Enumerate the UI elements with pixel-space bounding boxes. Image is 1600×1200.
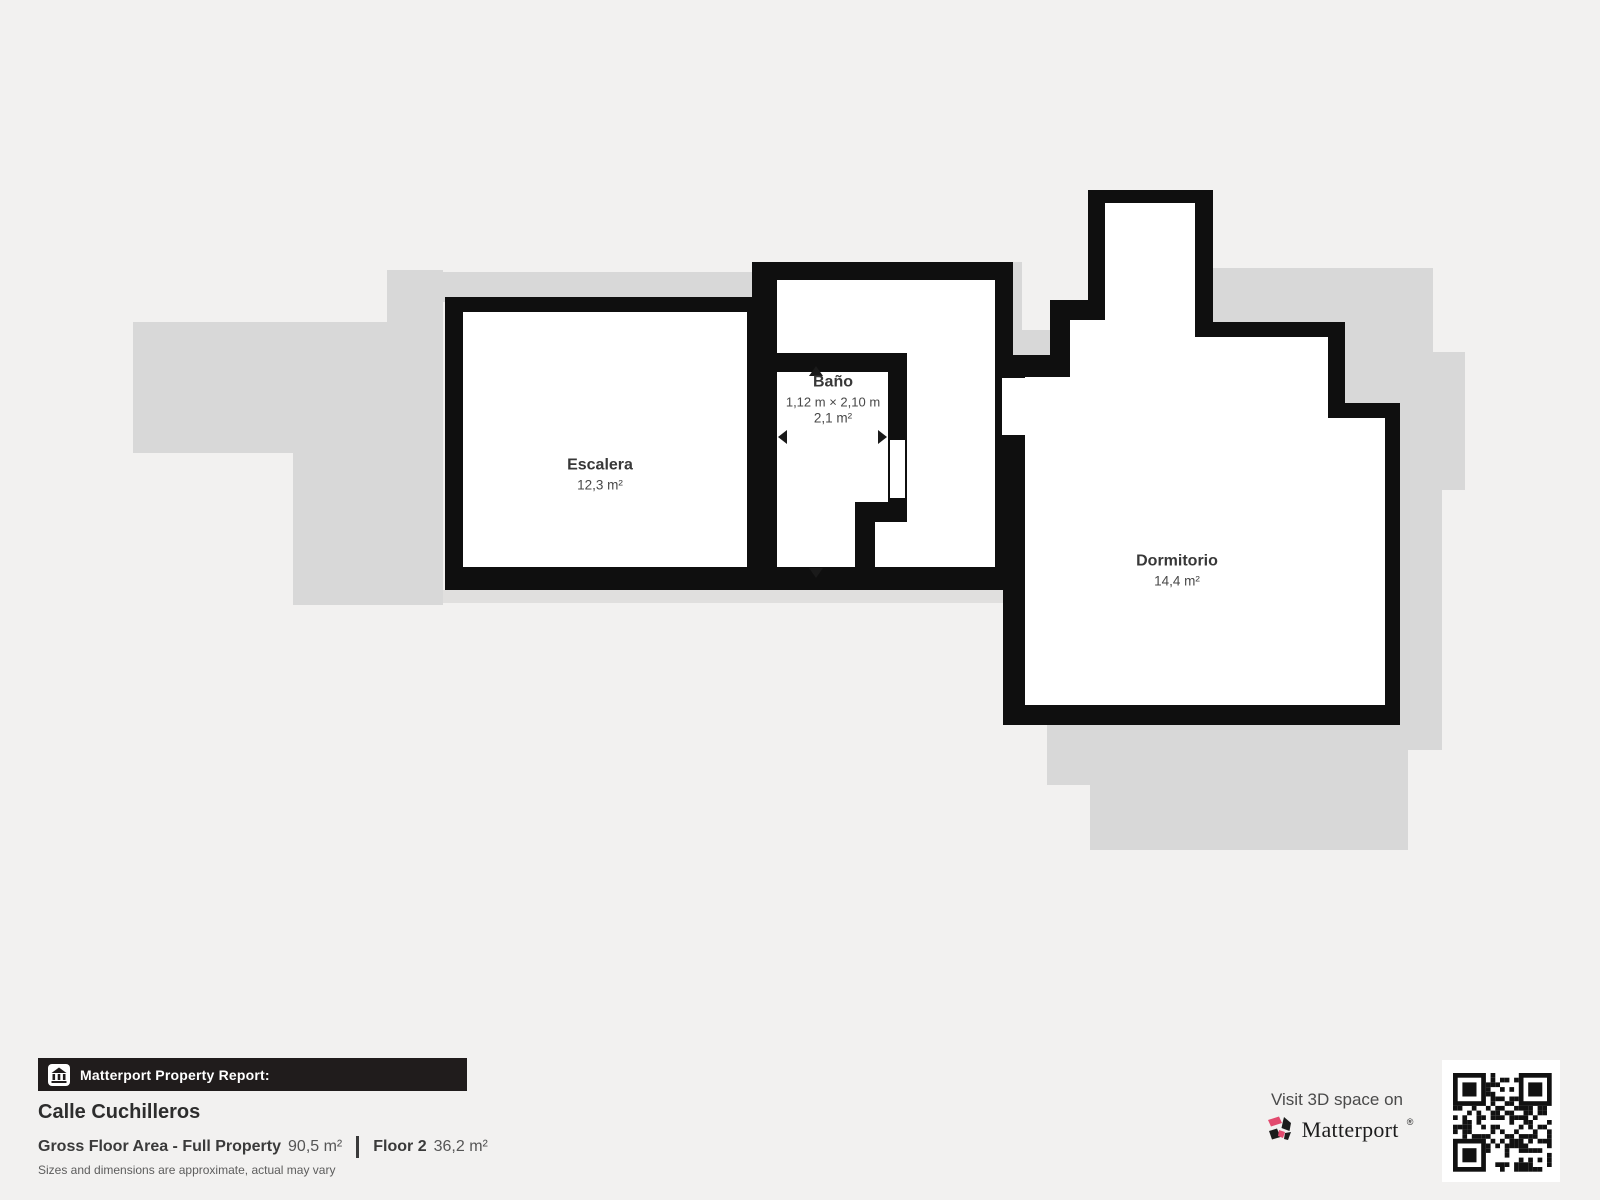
- floorplan-canvas: [0, 0, 1600, 1200]
- floor-area-value: 36,2 m²: [434, 1138, 488, 1156]
- separator-bar: [356, 1136, 359, 1158]
- matterport-house-icon: [48, 1064, 70, 1086]
- matterport-wordmark: Matterport: [1302, 1117, 1399, 1143]
- room-name: Baño: [786, 372, 880, 392]
- gross-area-label: Gross Floor Area - Full Property: [38, 1138, 281, 1156]
- report-banner-label: Matterport Property Report:: [80, 1067, 270, 1083]
- matterport-brand: Matterport ®: [1254, 1115, 1424, 1145]
- door-opening-bano: [890, 440, 905, 498]
- property-name: Calle Cuchilleros: [38, 1101, 200, 1124]
- room-interior-escalera: [463, 312, 747, 567]
- room-area: 14,4 m²: [1136, 574, 1218, 591]
- room-label-dormitorio: Dormitorio 14,4 m²: [1136, 552, 1218, 591]
- door-opening-dormitorio: [1002, 378, 1025, 435]
- room-dimensions: 1,12 m × 2,10 m: [786, 394, 880, 410]
- gross-area-value: 90,5 m²: [288, 1138, 342, 1156]
- qr-code: [1442, 1060, 1560, 1182]
- disclaimer-text: Sizes and dimensions are approximate, ac…: [38, 1163, 335, 1177]
- room-area: 2,1 m²: [786, 411, 880, 428]
- room-area: 12,3 m²: [567, 478, 633, 495]
- room-name: Escalera: [567, 456, 633, 476]
- room-label-bano: Baño 1,12 m × 2,10 m 2,1 m²: [786, 372, 880, 427]
- area-info-line: Gross Floor Area - Full Property 90,5 m²…: [38, 1136, 488, 1158]
- report-banner: Matterport Property Report:: [38, 1058, 467, 1091]
- trademark-symbol: ®: [1407, 1117, 1414, 1127]
- room-name: Dormitorio: [1136, 552, 1218, 572]
- room-label-escalera: Escalera 12,3 m²: [567, 456, 633, 495]
- matterport-pinwheel-icon: [1265, 1115, 1295, 1145]
- visit-3d-text: Visit 3D space on: [1254, 1090, 1420, 1110]
- floor-label: Floor 2: [373, 1138, 426, 1156]
- qr-code-pattern: [1442, 1060, 1560, 1182]
- floorplan-page: Escalera 12,3 m² Baño 1,12 m × 2,10 m 2,…: [0, 0, 1600, 1200]
